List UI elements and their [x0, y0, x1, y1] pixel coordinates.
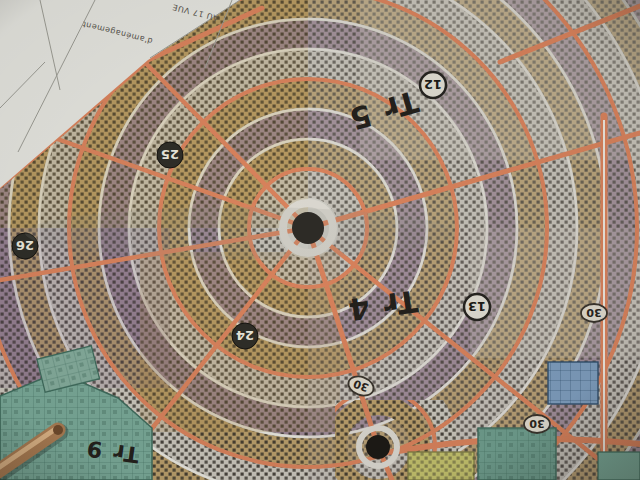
- photo-vignette: [0, 0, 640, 480]
- plan-drawing: AU 17 VUE d'aménagement 25 26 24 13 12 3…: [0, 0, 640, 480]
- map-photo: AU 17 VUE d'aménagement 25 26 24 13 12 3…: [0, 0, 640, 480]
